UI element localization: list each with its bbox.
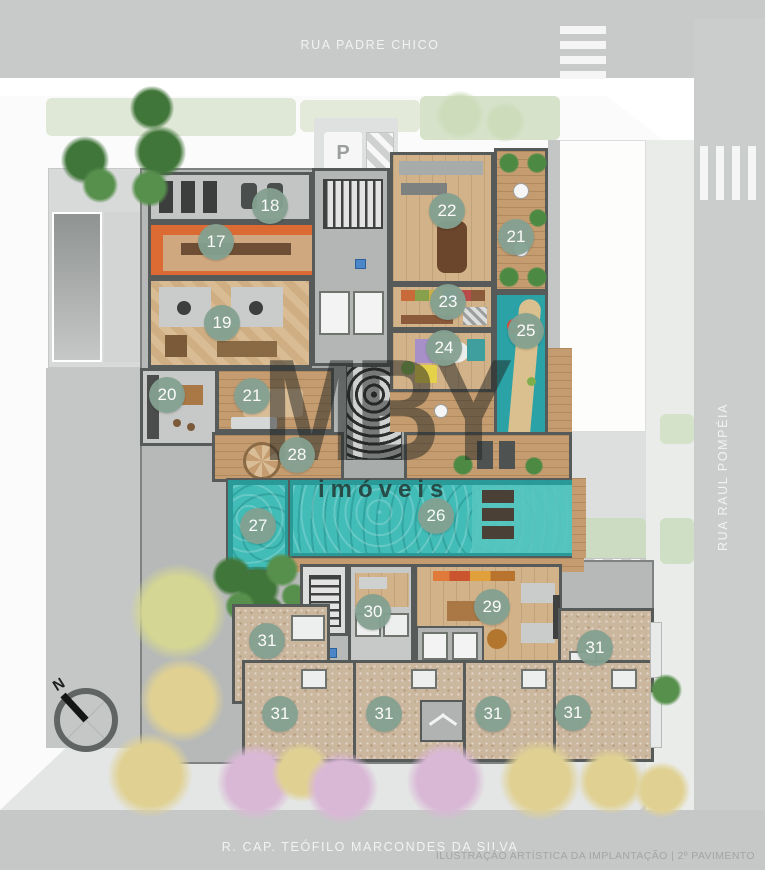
tree bbox=[82, 167, 118, 203]
tree bbox=[650, 674, 682, 706]
unit-bathroom bbox=[291, 615, 325, 641]
bistro-table bbox=[513, 241, 529, 257]
kitchen-counter bbox=[399, 161, 483, 175]
stool bbox=[187, 423, 195, 431]
tree bbox=[140, 658, 224, 742]
room-pantry bbox=[390, 284, 494, 330]
table bbox=[447, 601, 485, 621]
sign bbox=[355, 259, 366, 269]
tree bbox=[485, 102, 525, 142]
counter-orange bbox=[433, 571, 515, 581]
table bbox=[181, 385, 203, 405]
unit-bathroom bbox=[411, 669, 437, 689]
table bbox=[521, 583, 555, 603]
round-table bbox=[487, 629, 507, 649]
planter-bush bbox=[499, 153, 519, 173]
room-30-wc bbox=[348, 564, 414, 666]
elevator bbox=[452, 632, 478, 660]
deck-21-right bbox=[494, 148, 548, 292]
planter-bush bbox=[499, 267, 519, 287]
in-pool-lounger bbox=[482, 490, 514, 503]
shaft-chevron bbox=[441, 713, 457, 726]
gym-equipment bbox=[203, 181, 217, 213]
tree bbox=[500, 740, 580, 820]
studio-counter bbox=[181, 243, 291, 255]
pool-deck-right bbox=[572, 478, 586, 558]
watermark-sub: imóveis bbox=[318, 476, 449, 504]
lounge-table bbox=[249, 301, 263, 315]
room-gourmet bbox=[390, 152, 494, 284]
sofa bbox=[359, 577, 387, 589]
dining-table-large bbox=[437, 221, 467, 273]
tree bbox=[130, 564, 226, 660]
staircase bbox=[323, 179, 383, 229]
table bbox=[521, 623, 555, 643]
grass-patch bbox=[660, 414, 694, 444]
shelf bbox=[401, 315, 453, 324]
planter-bush bbox=[527, 153, 547, 173]
unit-bathroom bbox=[611, 669, 637, 689]
neighbor-roof-dark bbox=[52, 212, 102, 362]
planter-bush bbox=[527, 267, 547, 287]
grass-patch bbox=[578, 518, 646, 562]
counter bbox=[147, 375, 159, 439]
caption: ILUSTRAÇÃO ARTÍSTICA DA IMPLANTAÇÃO | 2º… bbox=[435, 850, 755, 862]
kitchen-island bbox=[401, 183, 447, 195]
watermark-brand: MBY bbox=[262, 338, 507, 483]
room-support bbox=[140, 368, 218, 446]
tree bbox=[436, 91, 484, 139]
in-pool-lounger bbox=[482, 508, 514, 521]
compass: N bbox=[46, 676, 130, 760]
gym-equipment bbox=[241, 183, 257, 209]
street-label-top: RUA PADRE CHICO bbox=[180, 38, 560, 52]
street-label-right: RUA RAUL POMPÉIA bbox=[716, 377, 730, 577]
tree bbox=[130, 86, 174, 130]
grass-patch bbox=[660, 518, 694, 564]
play-ring bbox=[507, 319, 521, 333]
unit-bathroom bbox=[301, 669, 327, 689]
shaft bbox=[420, 700, 464, 742]
gym-equipment bbox=[267, 183, 283, 209]
unit-bathroom bbox=[521, 669, 547, 689]
crosswalk-right bbox=[700, 146, 760, 200]
side-walkway bbox=[548, 140, 560, 348]
crosswalk-top bbox=[560, 26, 606, 82]
compass-n: N bbox=[50, 676, 68, 695]
dining-table bbox=[165, 335, 187, 357]
room-fitness-studio bbox=[148, 222, 330, 278]
tree bbox=[634, 762, 690, 818]
balcony bbox=[650, 622, 662, 678]
shelf-colorful bbox=[401, 290, 485, 301]
bistro-table bbox=[513, 183, 529, 199]
tree bbox=[578, 748, 644, 814]
bathroom bbox=[383, 613, 409, 637]
play-dot bbox=[527, 377, 536, 386]
in-pool-lounger bbox=[482, 526, 514, 539]
tropical-plant bbox=[265, 553, 299, 587]
site-plan-illustration: ♿ P bbox=[0, 0, 765, 870]
compass-rose: N bbox=[46, 676, 130, 760]
tree bbox=[407, 742, 485, 820]
unit-wall bbox=[353, 663, 356, 759]
planter-bush bbox=[529, 209, 547, 227]
gym-equipment bbox=[181, 181, 195, 213]
parking-sign-letter: P bbox=[336, 142, 349, 165]
room-gym bbox=[148, 172, 312, 222]
elevator bbox=[422, 632, 448, 660]
planter-bush bbox=[525, 457, 543, 475]
tree bbox=[306, 752, 378, 824]
lounge-table bbox=[177, 301, 191, 315]
bathroom bbox=[355, 613, 381, 637]
tree bbox=[131, 169, 169, 207]
stool bbox=[173, 419, 181, 427]
mirror-hatch bbox=[463, 307, 487, 325]
